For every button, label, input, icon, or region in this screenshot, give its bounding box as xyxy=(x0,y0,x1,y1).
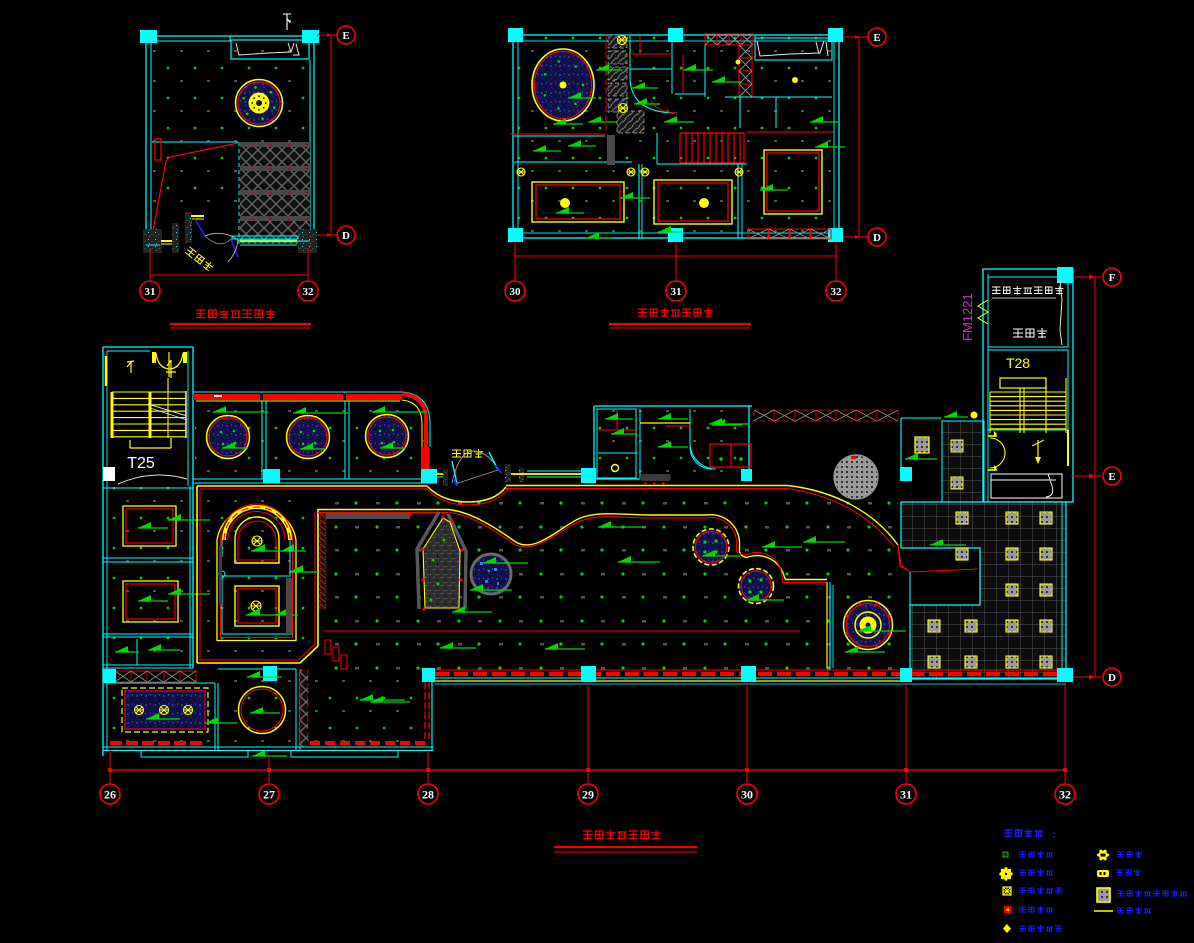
svg-text:F: F xyxy=(1109,272,1116,284)
svg-text:31: 31 xyxy=(671,286,682,298)
svg-text::: : xyxy=(1052,829,1056,841)
svg-text:FM1221: FM1221 xyxy=(960,293,975,341)
svg-text:E: E xyxy=(342,30,349,42)
svg-text:31: 31 xyxy=(145,286,156,298)
svg-text:D: D xyxy=(1108,672,1116,684)
svg-text:32: 32 xyxy=(1059,787,1071,801)
svg-text:D: D xyxy=(873,232,881,244)
svg-text:31: 31 xyxy=(900,787,912,801)
svg-text:27: 27 xyxy=(263,787,275,801)
svg-text:30: 30 xyxy=(741,787,753,801)
svg-text:32: 32 xyxy=(831,286,843,298)
svg-text:29: 29 xyxy=(582,787,594,801)
svg-text:28: 28 xyxy=(422,787,434,801)
svg-text:26: 26 xyxy=(104,787,116,801)
svg-text:E: E xyxy=(1108,471,1115,483)
svg-text:E: E xyxy=(873,32,880,44)
svg-text:D: D xyxy=(342,230,350,242)
svg-text:T28: T28 xyxy=(1006,355,1030,371)
svg-text:T25: T25 xyxy=(127,455,155,472)
svg-text:32: 32 xyxy=(303,286,315,298)
svg-text:30: 30 xyxy=(510,286,522,298)
